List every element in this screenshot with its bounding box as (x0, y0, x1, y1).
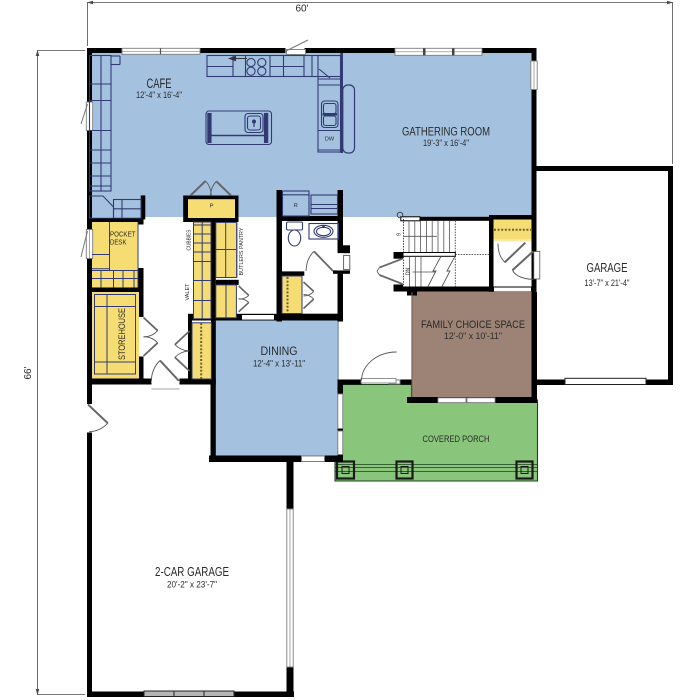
svg-text:R: R (294, 203, 298, 209)
svg-text:66': 66' (23, 366, 34, 379)
svg-text:STOREHOUSE: STOREHOUSE (117, 308, 127, 360)
svg-text:GARAGE: GARAGE (587, 261, 628, 275)
svg-text:CUBBIES: CUBBIES (187, 229, 193, 250)
svg-text:12'-0" x 10'-11": 12'-0" x 10'-11" (444, 331, 502, 342)
svg-text:2-CAR GARAGE: 2-CAR GARAGE (155, 565, 229, 579)
svg-text:DN: DN (406, 268, 412, 276)
svg-text:12'-4" x 16'-4": 12'-4" x 16'-4" (136, 90, 182, 101)
svg-text:DESK: DESK (110, 238, 127, 247)
svg-text:60': 60' (295, 4, 308, 15)
svg-text:FAMILY CHOICE SPACE: FAMILY CHOICE SPACE (421, 319, 525, 331)
svg-text:20'-2" x 23'-7": 20'-2" x 23'-7" (167, 580, 217, 591)
svg-text:9: 9 (397, 233, 403, 236)
svg-text:CAFE: CAFE (147, 76, 172, 91)
svg-text:19'-3" x 16'-4": 19'-3" x 16'-4" (423, 138, 469, 149)
svg-text:13'-7" x 21'-4": 13'-7" x 21'-4" (585, 278, 630, 289)
svg-text:GATHERING ROOM: GATHERING ROOM (402, 127, 490, 139)
svg-text:VALET: VALET (185, 283, 191, 301)
svg-text:COVERED PORCH: COVERED PORCH (423, 434, 490, 445)
svg-text:DW: DW (325, 137, 335, 143)
svg-text:12'-4" x 13'-11": 12'-4" x 13'-11" (253, 359, 305, 370)
svg-text:P: P (210, 204, 214, 210)
svg-text:DINING: DINING (261, 346, 298, 358)
svg-text:BUTLERS PANTRY: BUTLERS PANTRY (239, 227, 245, 276)
